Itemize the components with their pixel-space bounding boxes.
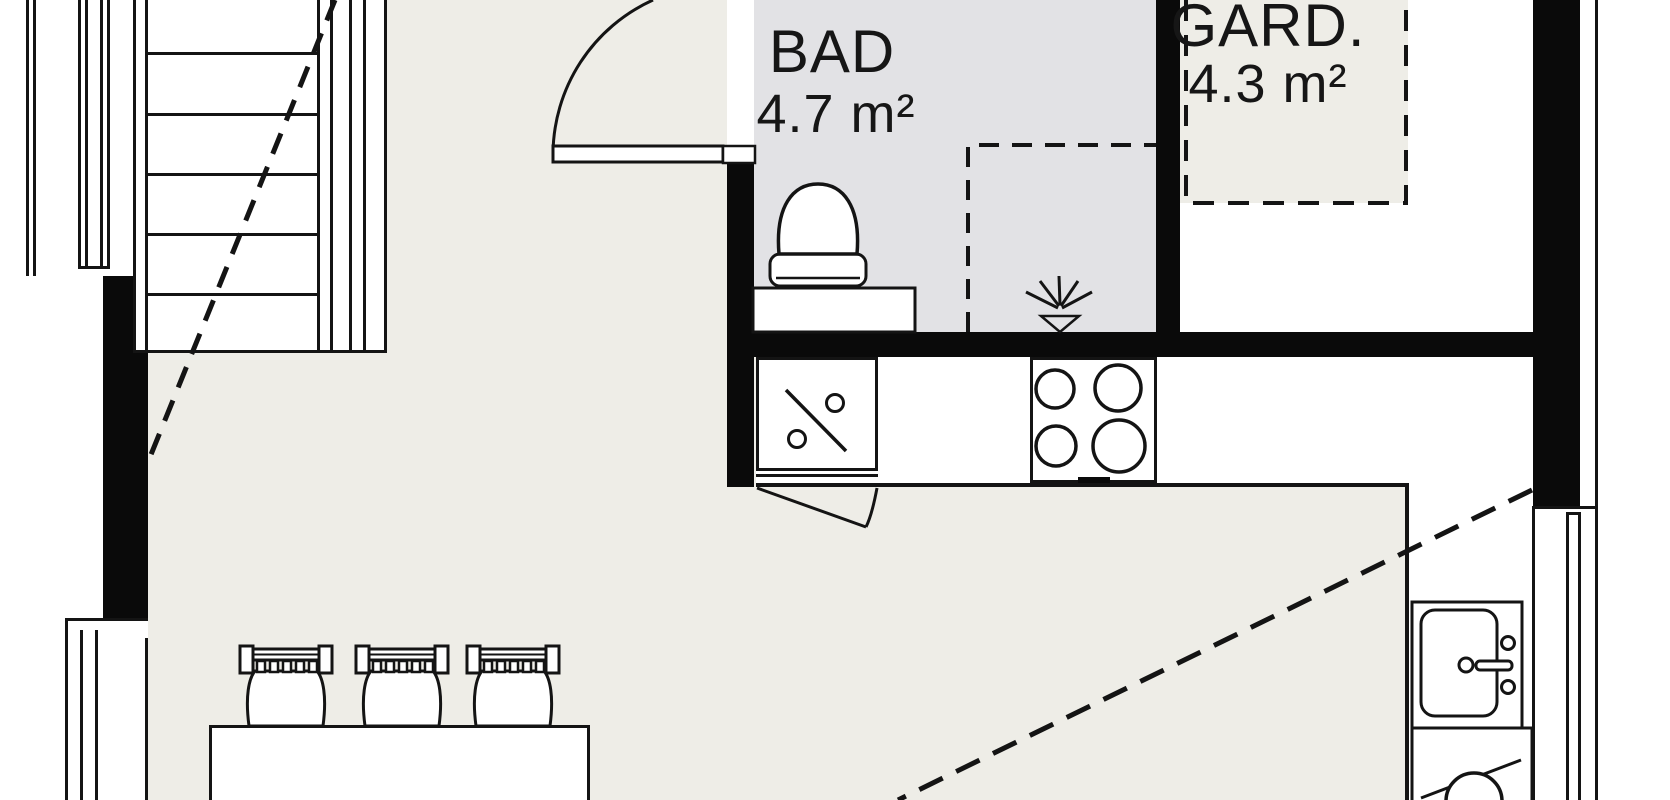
washing-machine-icon (1412, 728, 1532, 800)
vanity-counter (753, 288, 915, 332)
cooktop-burner (1093, 420, 1145, 472)
door-threshold (723, 146, 755, 163)
room-area-gard: 4.3 m² (1188, 56, 1347, 113)
shower-head-icon (1026, 276, 1092, 332)
room-label-bad: BAD (769, 20, 895, 83)
entry-door-leaf (553, 146, 723, 162)
entry-door-swing-arc (553, 0, 653, 154)
ceiling-height-line-left (148, 0, 335, 462)
entry-door (553, 0, 755, 163)
chair-icon (356, 646, 448, 726)
cooktop-control-tick (1078, 477, 1110, 483)
cooktop-burner (1036, 370, 1074, 408)
kitchen-sink-icon (1412, 602, 1522, 728)
dishwasher-icon (786, 390, 846, 451)
toilet-icon (770, 184, 866, 286)
floor-plan: BAD 4.7 m² GARD. 4.3 m² (0, 0, 1670, 800)
cooktop-burner (1036, 426, 1076, 466)
chair-icon (240, 646, 332, 726)
cooktop-burner (1095, 365, 1141, 411)
cooktop-icon (1036, 365, 1145, 472)
chairs (240, 646, 559, 726)
cabinet-door-swing (757, 488, 877, 527)
chair-icon (467, 646, 559, 726)
room-label-gard: GARD. (1170, 0, 1365, 57)
room-area-bad: 4.7 m² (756, 86, 915, 143)
